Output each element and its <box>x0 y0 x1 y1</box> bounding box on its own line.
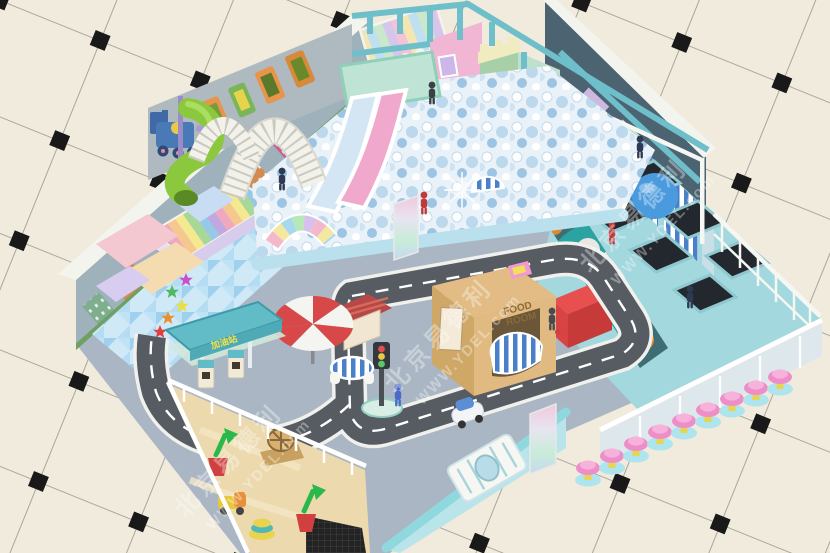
fuel-pump <box>198 360 214 388</box>
pastel-pillar <box>530 404 556 474</box>
playground-render: FOOD ROOM 加油站 <box>0 0 830 553</box>
fuel-pump <box>228 350 244 378</box>
striped-table <box>330 357 374 384</box>
pastel-column <box>394 196 418 260</box>
